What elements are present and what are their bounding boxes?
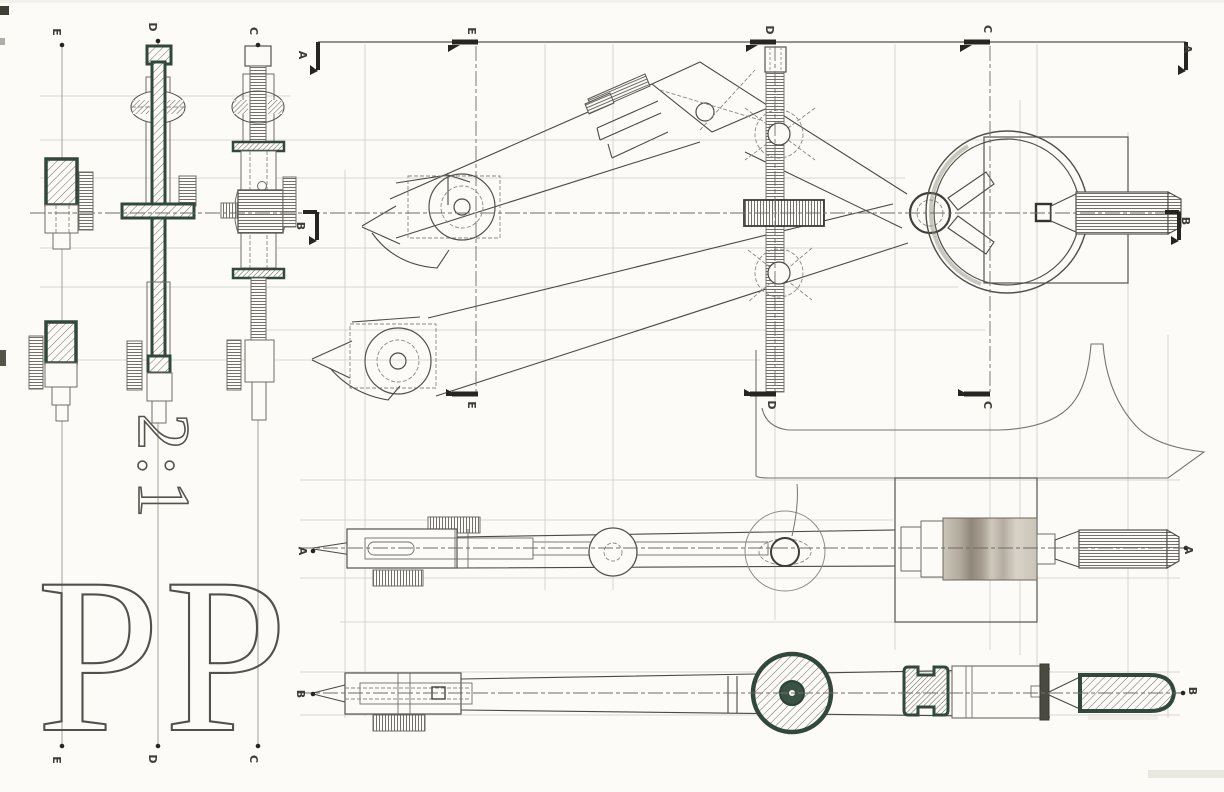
label-main-a-left: A (297, 48, 309, 62)
section-view-e (29, 159, 93, 421)
label-mid-a-left: A (297, 544, 309, 558)
drawing-sheet: E D C E D C A E D C A E D C B B A A B B … (0, 0, 1224, 792)
section-view-d (122, 46, 196, 423)
side-view-a (313, 478, 1184, 622)
label-main-c-top: C (982, 22, 994, 36)
label-mid-a-right: A (1183, 543, 1195, 557)
label-main-e-bottom: E (466, 398, 478, 412)
label-b-right: B (1180, 214, 1192, 228)
main-view-compass (312, 47, 1204, 478)
label-main-e-top: E (466, 24, 478, 38)
label-bot-b-right: B (1187, 684, 1199, 698)
label-col-e-top: E (51, 25, 63, 39)
label-col-d-top: D (147, 20, 159, 34)
label-b-left: B (295, 219, 307, 233)
scale-label: 2:1 (125, 390, 201, 546)
label-main-d-bottom: D (766, 398, 778, 412)
label-main-d-top: D (764, 23, 776, 37)
label-main-a-right: A (1182, 42, 1194, 56)
section-view-c (221, 46, 296, 420)
sheet-letters: PP (14, 570, 314, 748)
label-main-c-bottom: C (982, 398, 994, 412)
label-col-c-top: C (248, 24, 260, 38)
